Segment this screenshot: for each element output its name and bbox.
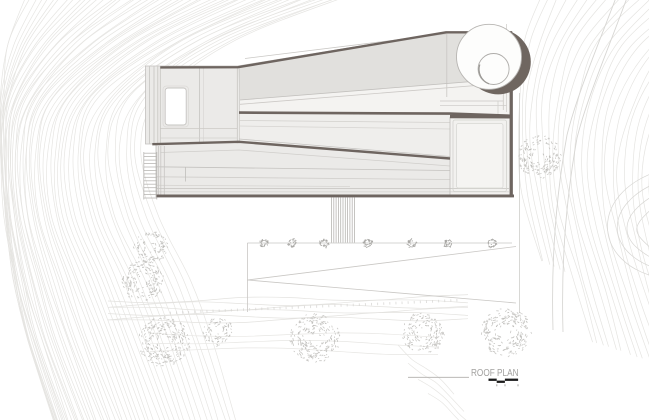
svg-text:ROOF PLAN: ROOF PLAN: [471, 368, 519, 379]
